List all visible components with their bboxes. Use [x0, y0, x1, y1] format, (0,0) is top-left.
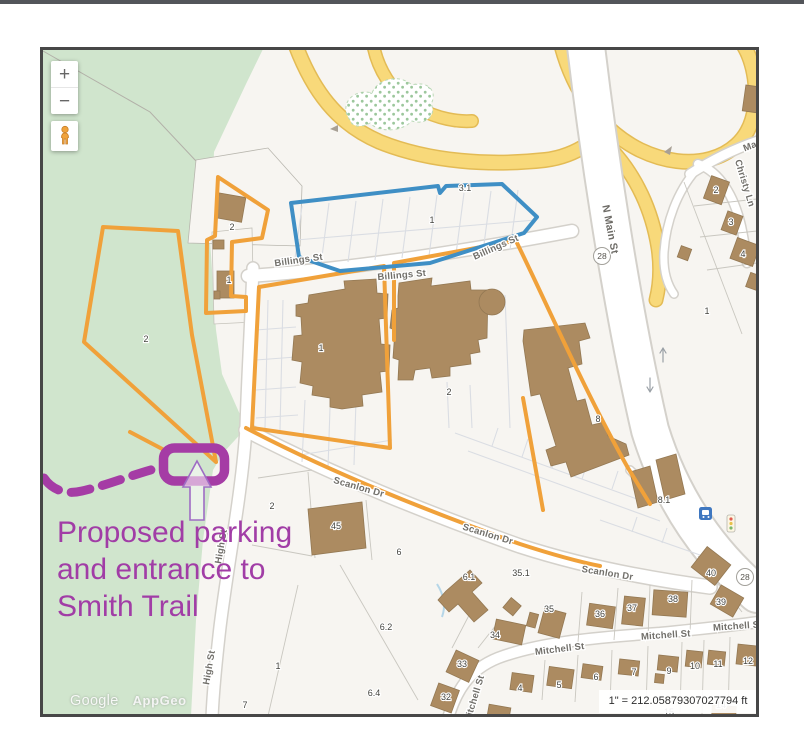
annotation-text-line: and entrance to	[57, 553, 266, 586]
parcel-number-label: 6.1	[463, 572, 476, 582]
pegman-button[interactable]	[51, 121, 78, 151]
route-shield-number: 28	[597, 251, 607, 261]
scale-readout: 1" = 212.05879307027794 ft	[599, 690, 757, 713]
parcel-number-label: 6.2	[380, 622, 393, 632]
pegman-icon	[57, 125, 73, 147]
parcel-number-label: 2	[713, 185, 718, 195]
screenshot-root: 2828 Billings StBillings StBillings StN …	[0, 0, 804, 748]
parcel-number-label: 3	[728, 217, 733, 227]
parcel-number-label: 1	[704, 306, 709, 316]
zoom-control: + −	[51, 61, 78, 114]
parcel-number-label: 7	[242, 700, 247, 710]
parcel-number-label: 45	[331, 521, 341, 531]
parcel-number-label: 36	[595, 609, 605, 619]
parcel-number-label: 12	[743, 656, 753, 666]
building-2-apse	[479, 289, 505, 315]
parcel-number-label: 34	[490, 630, 500, 640]
parcel-number-label: 1	[318, 343, 323, 353]
traffic-light-icon	[727, 515, 735, 532]
zoom-in-button[interactable]: +	[51, 61, 78, 87]
parcel-number-label: 2	[446, 387, 451, 397]
route-shield-number: 28	[740, 572, 750, 582]
parcel-number-label: 10	[690, 661, 700, 671]
parcel-number-label: 4	[517, 683, 522, 693]
parcel-number-label: 35	[544, 604, 554, 614]
parcel-number-label: 1	[275, 661, 280, 671]
parcel-number-label: 8.1	[658, 495, 671, 505]
parcel-number-label: 6	[396, 547, 401, 557]
parcel-number-label: 38	[668, 594, 678, 604]
parcel-number-label: 2	[143, 334, 148, 344]
parcel-number-label: 3.1	[459, 183, 472, 193]
parcel-number-label: 1	[226, 275, 231, 285]
parcel-number-label: 40	[706, 568, 716, 578]
parcel-number-label: 1	[429, 215, 434, 225]
parcel-number-label: 5	[556, 680, 561, 690]
zoom-out-button[interactable]: −	[51, 88, 78, 114]
parcel-number-label: 35.1	[512, 568, 530, 578]
annotation-text-line: Proposed parking	[57, 516, 292, 549]
annotation-text-line: Smith Trail	[57, 590, 199, 623]
bus-stop-icon[interactable]	[699, 507, 712, 520]
map-canvas[interactable]: 2828 Billings StBillings StBillings StN …	[0, 0, 804, 748]
parcel-number-label: 39	[716, 597, 726, 607]
parcel-number-label: 37	[627, 603, 637, 613]
parcel-number-label: 4	[740, 249, 745, 259]
parcel-number-label: 7	[631, 667, 636, 677]
parcel-number-label: 32	[441, 692, 451, 702]
parcel-number-label: 6.4	[368, 688, 381, 698]
parcel-number-label: 9	[666, 666, 671, 676]
parcel-number-label: 8	[595, 414, 600, 424]
parcel-number-label: 11	[713, 659, 722, 669]
parcel-number-label: 6	[593, 672, 598, 682]
parcel-number-label: 33	[457, 659, 467, 669]
parcel-number-label: 2	[229, 222, 234, 232]
parcel-number-label: 2	[269, 501, 274, 511]
